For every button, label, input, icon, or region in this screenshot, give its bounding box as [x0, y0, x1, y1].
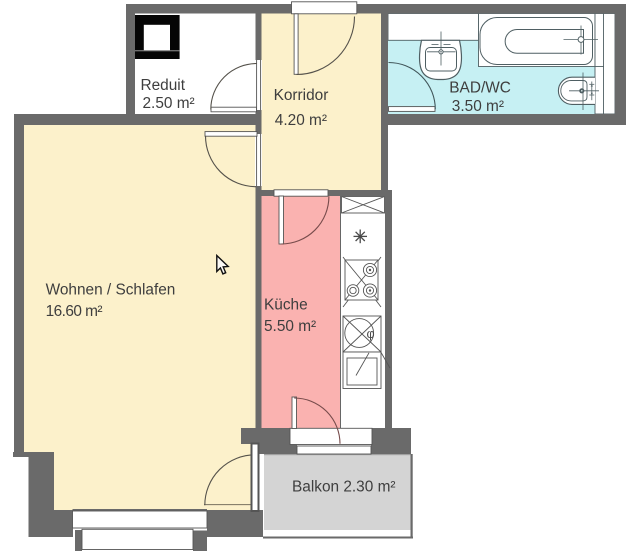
svg-text:5.50 m²: 5.50 m²	[264, 318, 316, 335]
svg-text:Balkon 2.30 m²: Balkon 2.30 m²	[292, 479, 396, 496]
svg-text:BAD/WC: BAD/WC	[449, 80, 511, 97]
svg-text:16.60 m²: 16.60 m²	[46, 303, 103, 320]
svg-text:Wohnen / Schlafen: Wohnen / Schlafen	[46, 282, 176, 299]
svg-text:3.50 m²: 3.50 m²	[452, 98, 504, 115]
svg-text:φ: φ	[367, 327, 375, 341]
svg-text:2.50 m²: 2.50 m²	[143, 95, 195, 112]
svg-text:Küche: Küche	[264, 296, 308, 313]
svg-text:Korridor: Korridor	[274, 87, 329, 104]
svg-text:4.20 m²: 4.20 m²	[275, 112, 327, 129]
svg-text:Reduit: Reduit	[141, 77, 186, 94]
